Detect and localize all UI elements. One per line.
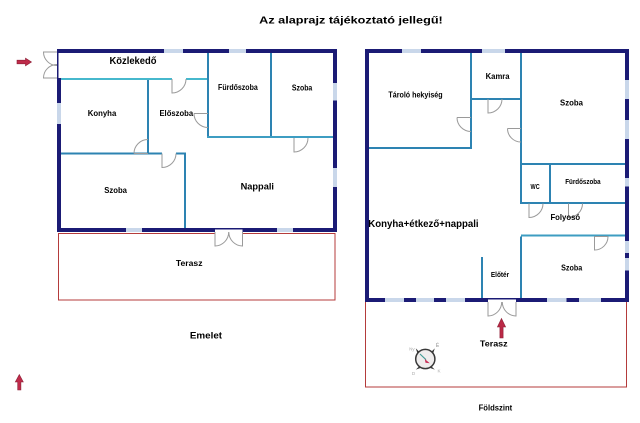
svg-text:WC: WC (531, 184, 540, 191)
svg-text:K: K (437, 369, 441, 374)
svg-text:Konyha: Konyha (88, 108, 117, 118)
svg-text:Az alaprajz tájékoztató jelleg: Az alaprajz tájékoztató jellegű! (259, 15, 443, 26)
svg-text:Szoba: Szoba (561, 262, 582, 272)
svg-text:Nappali: Nappali (241, 182, 274, 192)
svg-text:Terasz: Terasz (480, 338, 508, 348)
svg-text:Tároló hekyiség: Tároló hekyiség (388, 90, 442, 99)
svg-text:Emelet: Emelet (190, 331, 222, 341)
svg-text:Terasz: Terasz (176, 258, 203, 268)
svg-text:Szoba: Szoba (104, 185, 127, 195)
svg-text:Közlekedő: Közlekedő (110, 56, 157, 67)
svg-text:Konyha+étkező+nappali: Konyha+étkező+nappali (368, 219, 479, 230)
svg-text:É: É (436, 342, 440, 349)
svg-text:Szoba: Szoba (560, 98, 583, 108)
svg-text:Előszoba: Előszoba (159, 108, 193, 118)
svg-text:Fürdőszoba: Fürdőszoba (218, 83, 258, 92)
svg-text:Ny: Ny (409, 347, 415, 352)
svg-text:Szoba: Szoba (292, 83, 313, 93)
svg-text:Folyosó: Folyosó (550, 212, 580, 222)
svg-text:Kamra: Kamra (486, 72, 510, 81)
svg-text:Előtér: Előtér (491, 270, 509, 279)
svg-text:D: D (412, 371, 416, 376)
svg-text:Földszint: Földszint (479, 403, 513, 413)
svg-text:Fürdőszoba: Fürdőszoba (565, 177, 601, 186)
